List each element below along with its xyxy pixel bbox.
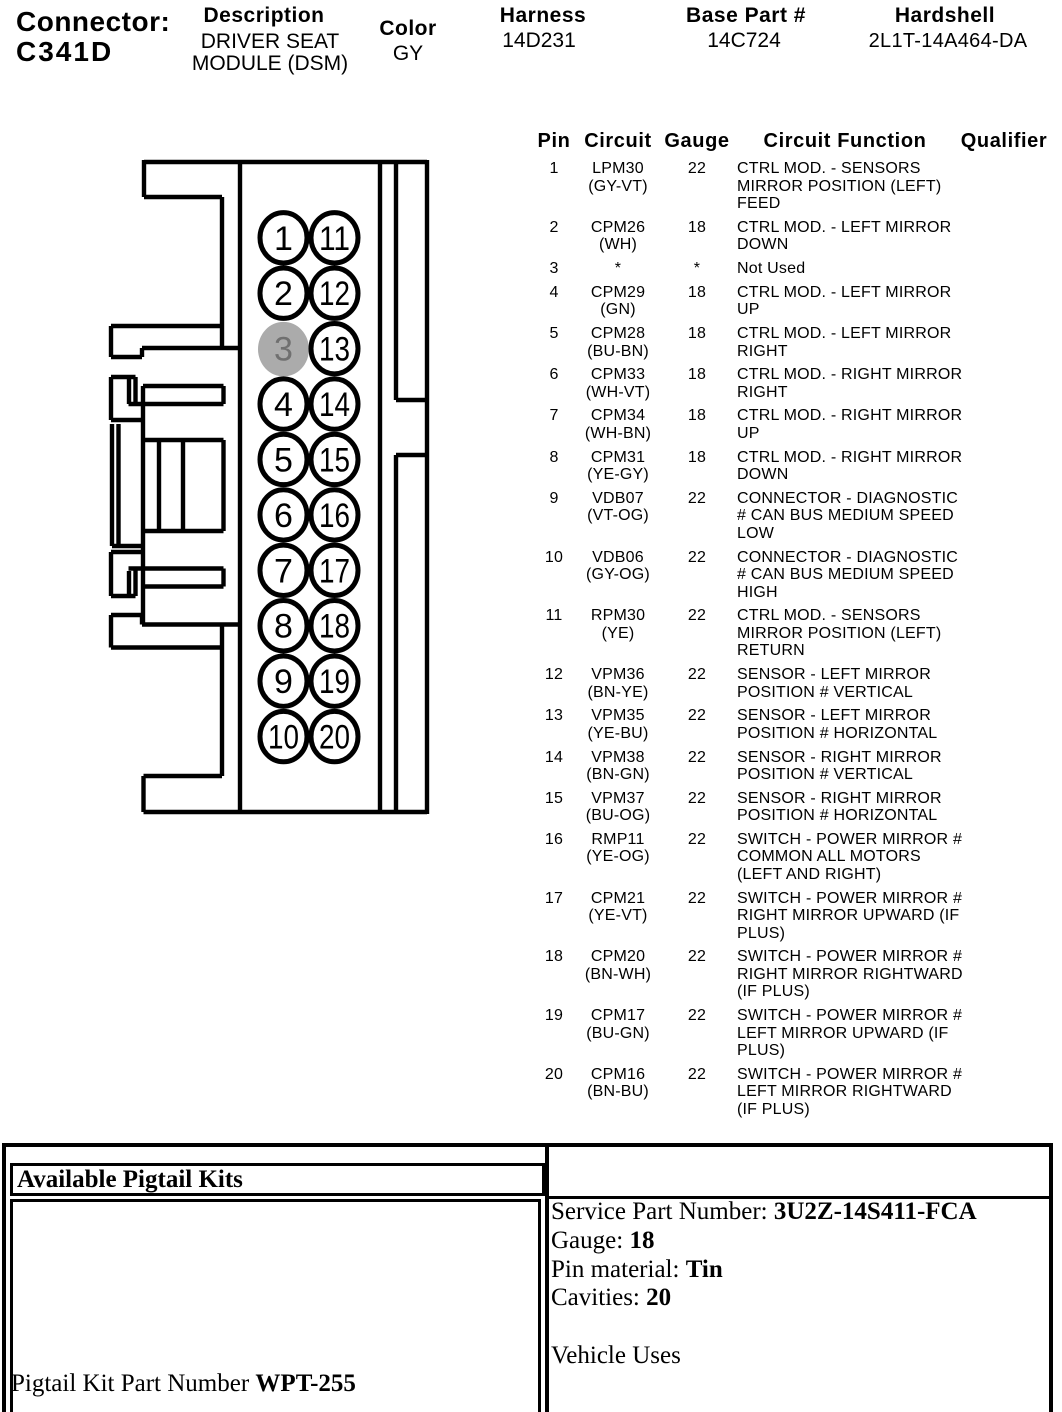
svg-text:14: 14 [319, 386, 350, 424]
svg-text:8: 8 [274, 608, 293, 646]
svg-text:3: 3 [274, 331, 293, 369]
svg-text:15: 15 [319, 441, 350, 479]
svg-text:4: 4 [274, 386, 293, 424]
svg-text:9: 9 [274, 663, 293, 701]
svg-text:10: 10 [268, 719, 299, 757]
svg-text:7: 7 [274, 552, 293, 590]
svg-text:2: 2 [274, 275, 293, 313]
svg-text:6: 6 [274, 497, 293, 535]
svg-text:5: 5 [274, 441, 293, 479]
svg-text:16: 16 [319, 497, 350, 535]
svg-text:20: 20 [319, 719, 350, 757]
svg-text:1: 1 [274, 220, 293, 258]
svg-text:13: 13 [319, 331, 350, 369]
svg-text:17: 17 [319, 552, 350, 590]
svg-text:12: 12 [319, 275, 350, 313]
svg-text:11: 11 [319, 220, 350, 258]
svg-text:19: 19 [319, 663, 350, 701]
svg-text:18: 18 [319, 608, 350, 646]
